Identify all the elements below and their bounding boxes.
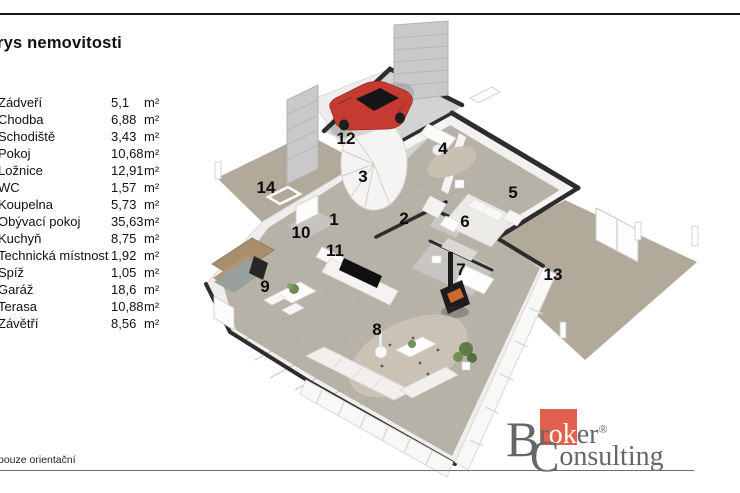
room-number-label: 4 [438,139,448,158]
room-number-label: 5 [508,183,517,202]
room-number-label: 7 [456,260,465,279]
room-number-label: 1 [329,210,338,229]
room-number-label: 2 [399,209,408,228]
room-number-label: 14 [257,178,276,197]
bottom-rule [0,470,694,471]
footnote: pouze orientační [0,454,76,466]
broker-consulting-logo: Broker® Consulting [504,400,714,464]
floor-plan-page: rys nemovitosti Zádveří5,1m²Chodba6,88m²… [0,0,740,493]
room-number-label: 11 [326,241,344,260]
room-number-label: 6 [460,212,469,231]
room-number-label: 13 [544,265,563,284]
logo-text: onsulting [559,441,663,472]
room-number-label: 3 [358,167,367,186]
room-number-label: 12 [337,129,356,148]
logo-letter-c: C [530,432,559,481]
room-number-label: 10 [292,223,311,242]
logo-line2: Consulting [530,429,664,473]
room-number-label: 9 [260,277,269,296]
room-number-label: 8 [372,320,381,339]
